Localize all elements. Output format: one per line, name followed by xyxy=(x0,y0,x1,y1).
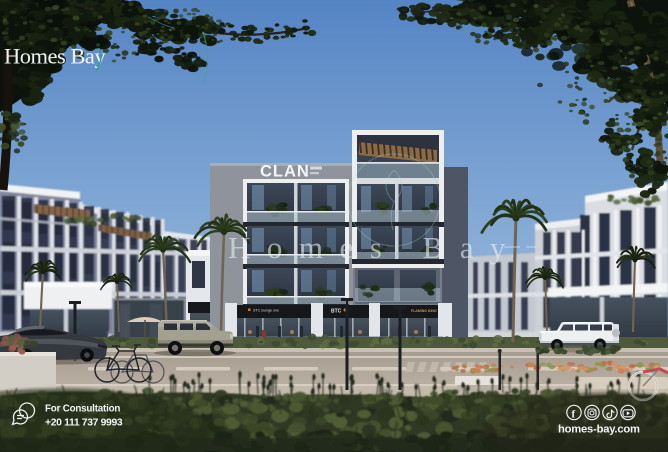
svg-text:+20 111 737 9993: +20 111 737 9993 xyxy=(45,418,123,429)
svg-text:Homes Bay: Homes Bay xyxy=(4,44,106,69)
svg-text:Homes Bay: Homes Bay xyxy=(228,230,522,265)
svg-text:STC lounge one: STC lounge one xyxy=(253,309,279,313)
svg-text:f: f xyxy=(572,409,576,421)
svg-text:homes-bay.com: homes-bay.com xyxy=(558,424,640,436)
svg-text:FLAMING KING: FLAMING KING xyxy=(411,309,437,313)
svg-text:For Consultation: For Consultation xyxy=(45,404,120,415)
svg-text:BTC: BTC xyxy=(331,309,342,315)
svg-text:CLAN: CLAN xyxy=(260,163,310,181)
